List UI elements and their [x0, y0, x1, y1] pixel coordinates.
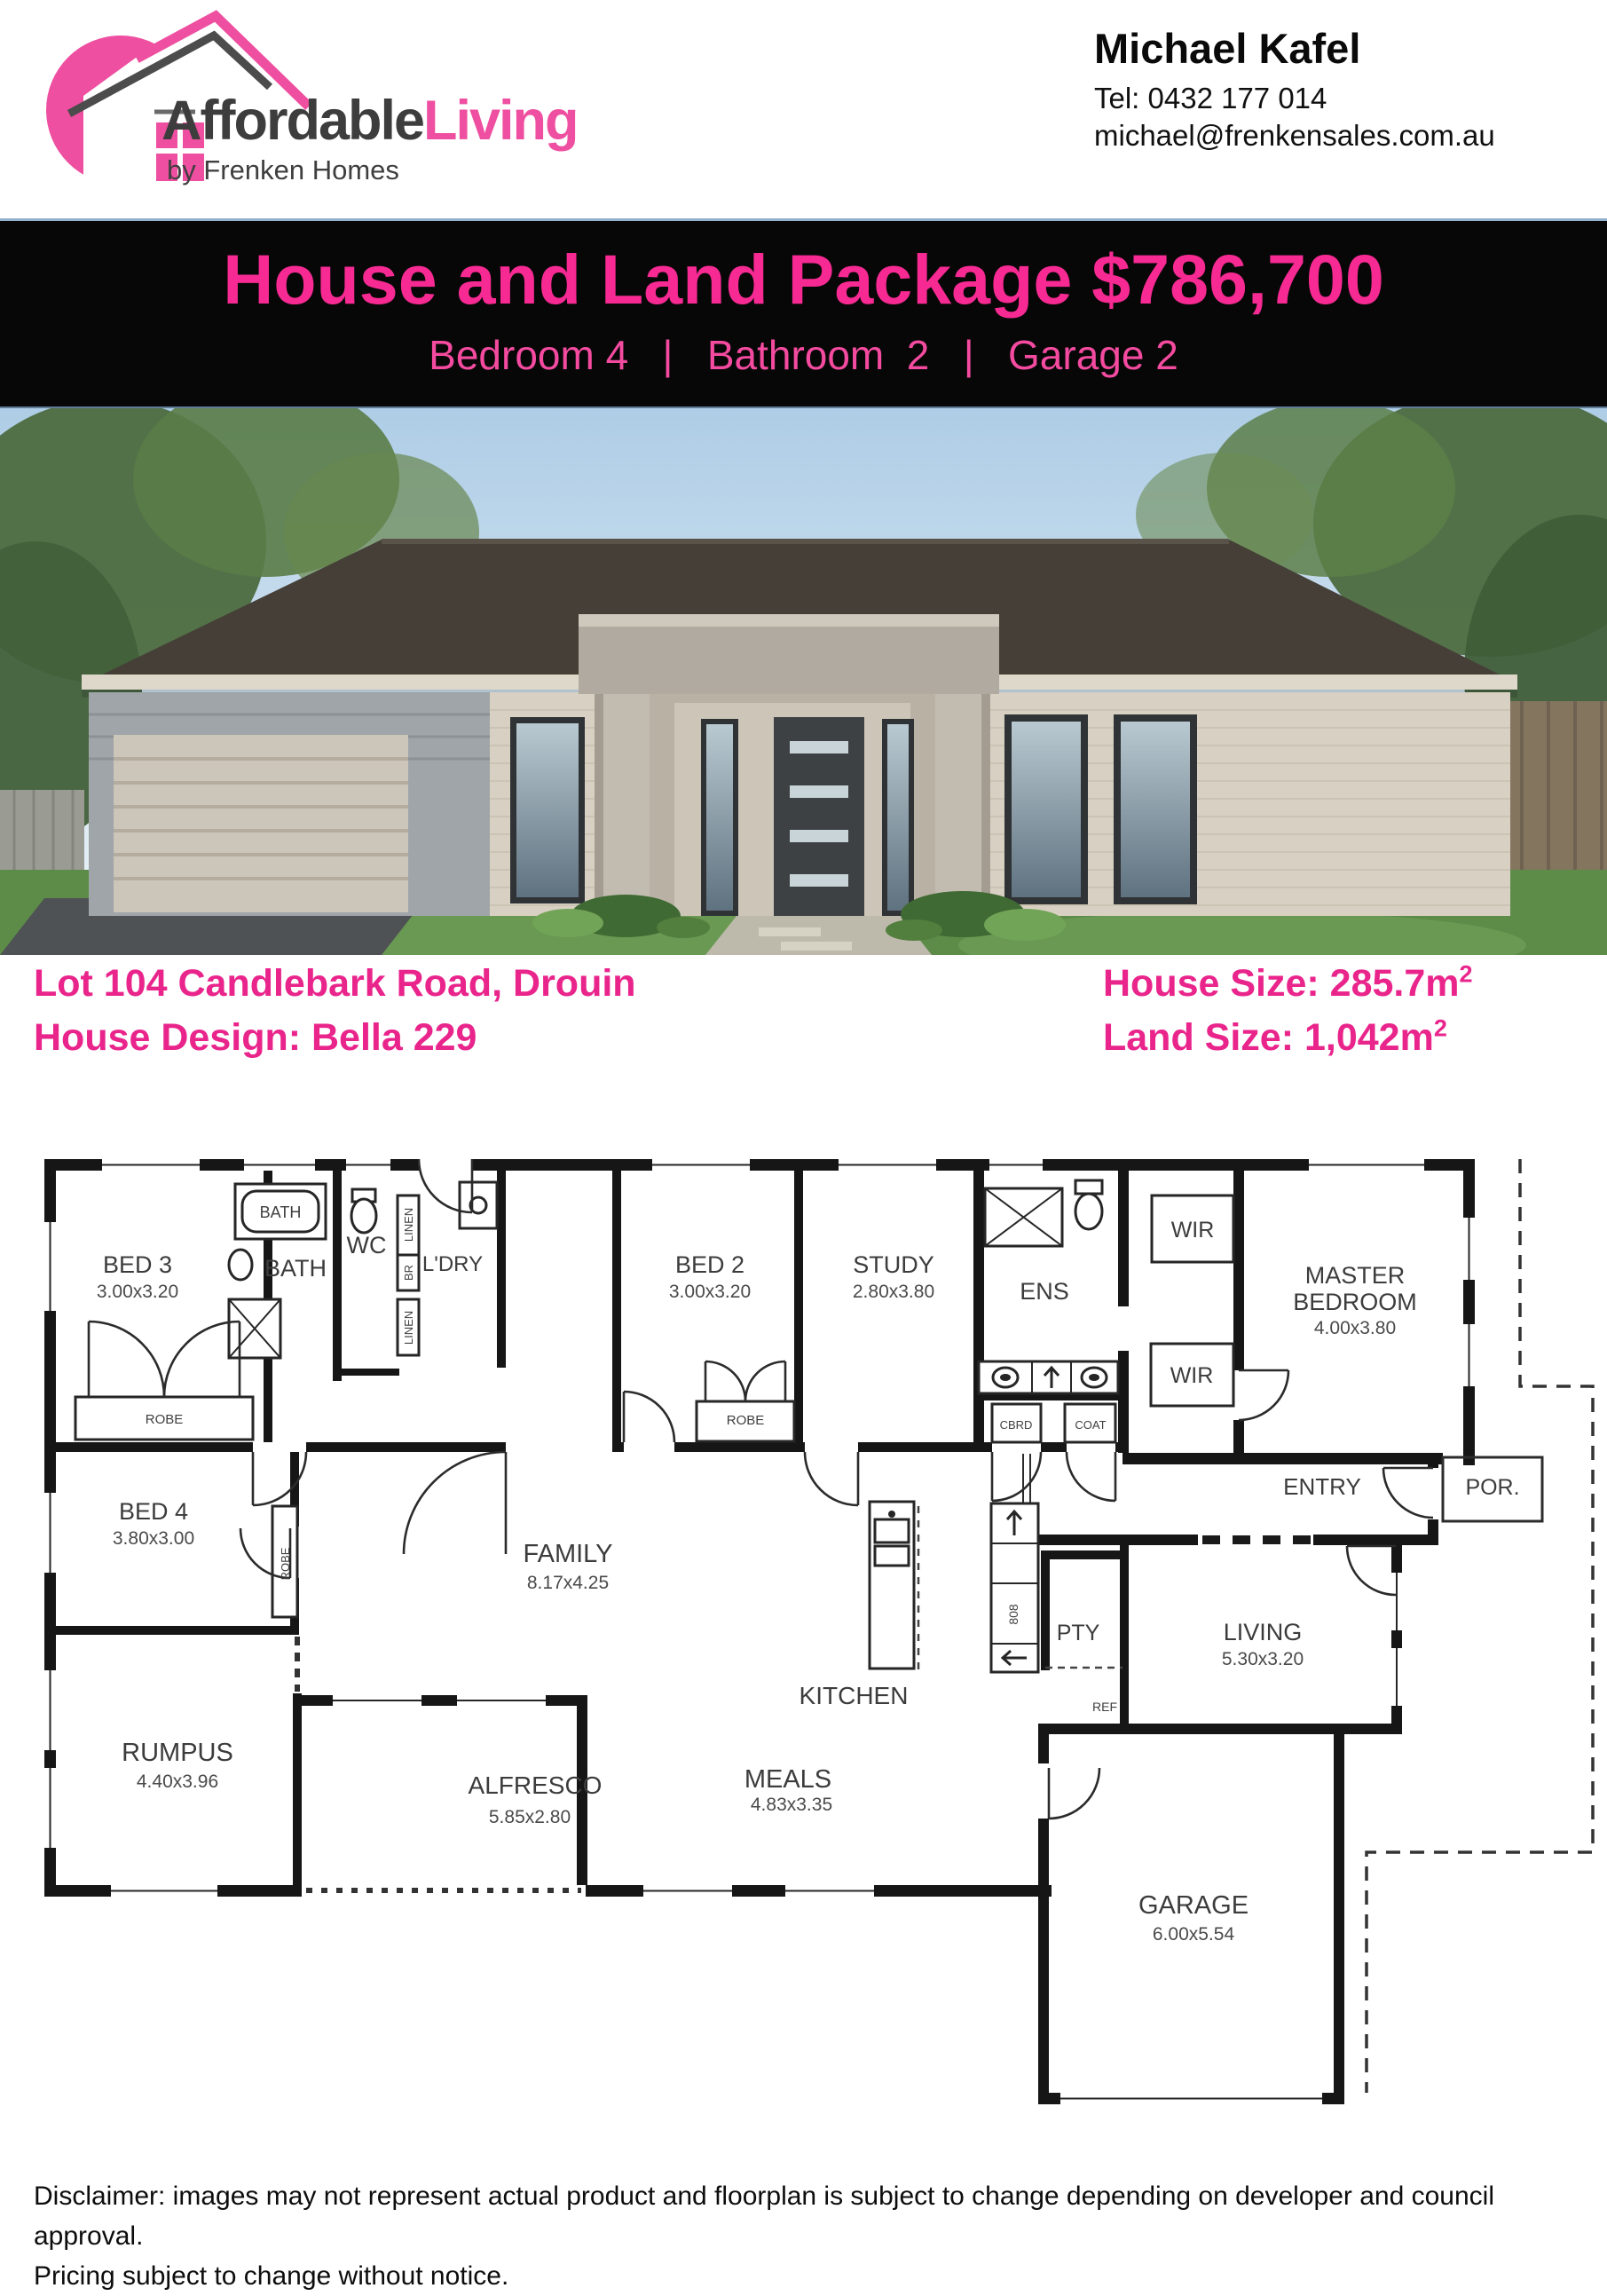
- house-render-image: [0, 408, 1607, 955]
- label-ref: REF: [1092, 1700, 1117, 1714]
- affordable-living-logo: AffordableLiving by Frenken Homes: [32, 4, 618, 201]
- label-wir2: WIR: [1170, 1363, 1214, 1388]
- flyer-page: AffordableLiving by Frenken Homes Michae…: [0, 0, 1607, 2272]
- room-label-bath: BATH: [264, 1255, 327, 1282]
- disclaimer: Disclaimer: images may not represent act…: [34, 2176, 1578, 2296]
- basin: [229, 1250, 252, 1280]
- ens-toilet: [1075, 1180, 1102, 1194]
- floorplan-drawing: BED 3 3.00x3.20 BATH BATH WC LINEN BR LI…: [40, 1147, 1602, 2189]
- agent-name: Michael Kafel: [1094, 25, 1495, 73]
- fixtures: [75, 1180, 1233, 1672]
- room-dims-alfresco: 5.85x2.80: [489, 1807, 571, 1827]
- brand-living: Living: [423, 90, 578, 152]
- room-label-bed2: BED 2: [675, 1251, 744, 1278]
- agent-phone: Tel: 0432 177 014: [1094, 82, 1495, 115]
- floorplan: BED 3 3.00x3.20 BATH BATH WC LINEN BR LI…: [40, 1147, 1602, 2189]
- house-size-sup: 2: [1460, 961, 1473, 988]
- brand-tagline: by Frenken Homes: [167, 154, 399, 186]
- room-dims-living: 5.30x3.20: [1222, 1649, 1304, 1669]
- room-label-garage: GARAGE: [1138, 1891, 1249, 1920]
- room-label-wc: WC: [347, 1232, 387, 1258]
- garage-door: [114, 735, 408, 912]
- label-robe4: ROBE: [279, 1547, 292, 1580]
- brand-name: AffordableLiving: [161, 89, 578, 153]
- portico-beam: [579, 627, 999, 694]
- room-dims-bed2: 3.00x3.20: [669, 1282, 751, 1302]
- room-label-ldry: L'DRY: [422, 1252, 483, 1276]
- disclaimer-line2: Pricing subject to change without notice…: [34, 2256, 1578, 2296]
- label-cbrd: CBRD: [1000, 1418, 1033, 1432]
- label-br: BR: [402, 1265, 415, 1281]
- property-details: Lot 104 Candlebark Road, Drouin House De…: [0, 957, 1607, 1072]
- room-label-alfresco: ALFRESCO: [469, 1771, 603, 1799]
- label-robe1: ROBE: [146, 1412, 184, 1427]
- house-render: [0, 408, 1607, 955]
- agent-contact-block: Michael Kafel Tel: 0432 177 014 michael@…: [1094, 25, 1495, 153]
- room-dims-meals: 4.83x3.35: [751, 1795, 832, 1815]
- room-label-pty: PTY: [1057, 1621, 1100, 1645]
- room-dims-family: 8.17x4.25: [527, 1573, 609, 1593]
- room-dims-garage: 6.00x5.54: [1153, 1924, 1235, 1945]
- room-label-master1: MASTER: [1305, 1262, 1406, 1289]
- room-dims-rumpus: 4.40x3.96: [137, 1771, 218, 1792]
- room-label-bed3: BED 3: [103, 1251, 172, 1278]
- label-linen1: LINEN: [402, 1208, 415, 1242]
- label-appliances: 808: [1006, 1604, 1020, 1625]
- rooms-summary: Bedroom 4 | Bathroom 2 | Garage 2: [0, 331, 1607, 379]
- price-banner: House and Land Package $786,700 Bedroom …: [0, 218, 1607, 408]
- label-wir1: WIR: [1171, 1218, 1215, 1243]
- label-linen2: LINEN: [402, 1311, 415, 1345]
- label-robe2: ROBE: [727, 1413, 765, 1428]
- room-dims-bed3: 3.00x3.20: [97, 1282, 178, 1302]
- room-dims-master: 4.00x3.80: [1314, 1318, 1396, 1338]
- front-door: [701, 717, 914, 916]
- room-label-por: POR.: [1465, 1475, 1519, 1500]
- header: AffordableLiving by Frenken Homes Michae…: [0, 0, 1607, 218]
- agent-email: michael@frenkensales.com.au: [1094, 119, 1495, 153]
- room-label-ens: ENS: [1020, 1278, 1069, 1305]
- lot-address: Lot 104 Candlebark Road, Drouin: [34, 957, 636, 1011]
- room-label-living: LIVING: [1224, 1619, 1303, 1645]
- land-size: Land Size: 1,042m2: [1103, 1011, 1473, 1065]
- room-label-study: STUDY: [853, 1251, 934, 1278]
- room-label-meals: MEALS: [744, 1765, 831, 1794]
- label-coat: COAT: [1075, 1418, 1106, 1432]
- brand-affordable: Affordable: [161, 90, 423, 152]
- label-bathtub: BATH: [260, 1203, 302, 1221]
- sink: [875, 1519, 909, 1543]
- room-dims-study: 2.80x3.80: [853, 1282, 934, 1302]
- room-label-kitchen: KITCHEN: [800, 1682, 909, 1709]
- room-label-rumpus: RUMPUS: [122, 1739, 233, 1767]
- room-label-family: FAMILY: [524, 1540, 613, 1568]
- house-size: House Size: 285.7m2: [1103, 957, 1473, 1011]
- room-label-master2: BEDROOM: [1293, 1289, 1417, 1315]
- house-design: House Design: Bella 229: [34, 1011, 636, 1065]
- room-labels: BED 3 3.00x3.20 BATH BATH WC LINEN BR LI…: [97, 1203, 1520, 1945]
- package-title: House and Land Package $786,700: [0, 239, 1607, 320]
- room-label-entry: ENTRY: [1283, 1473, 1361, 1500]
- land-size-sup: 2: [1434, 1015, 1447, 1042]
- room-dims-bed4: 3.80x3.00: [113, 1528, 194, 1549]
- room-label-bed4: BED 4: [119, 1498, 188, 1525]
- disclaimer-line1: Disclaimer: images may not represent act…: [34, 2176, 1578, 2256]
